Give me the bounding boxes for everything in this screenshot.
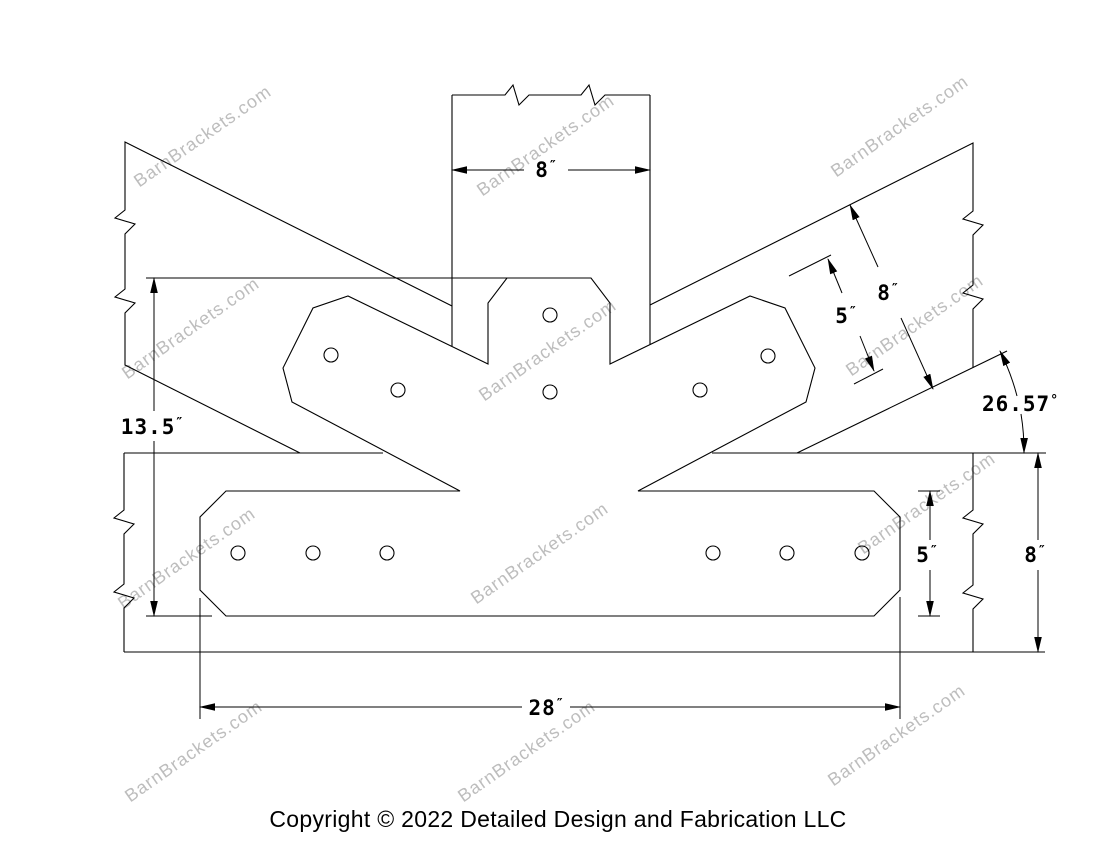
dimension-label: 8″ — [535, 158, 556, 182]
watermark-text: BarnBrackets.com — [130, 81, 275, 191]
bolt-hole — [543, 385, 557, 399]
right-rafter-outline — [650, 143, 983, 368]
bolt-hole — [543, 308, 557, 322]
watermark-text: BarnBrackets.com — [824, 680, 969, 790]
post-top-edge — [452, 85, 650, 105]
bolt-hole — [780, 546, 794, 560]
dimension-label: 13.5″ — [121, 415, 183, 439]
watermark-text: BarnBrackets.com — [475, 295, 620, 405]
dimension-rafter-angle: 26.57° — [982, 351, 1058, 453]
angle-arc — [1000, 351, 1017, 396]
dimension-label: 8″ — [1024, 543, 1045, 567]
watermark-text: BarnBrackets.com — [467, 498, 612, 608]
bolt-hole — [706, 546, 720, 560]
beam-left-edge — [114, 453, 134, 652]
left-rafter — [115, 142, 452, 453]
watermark-text: BarnBrackets.com — [114, 503, 259, 613]
dimension-label: 5″ — [916, 543, 937, 567]
watermark-text: BarnBrackets.com — [473, 90, 618, 200]
bolt-hole — [306, 546, 320, 560]
dimension-line — [828, 259, 842, 293]
bolt-hole — [380, 546, 394, 560]
bolt-hole — [391, 383, 405, 397]
watermark-text: BarnBrackets.com — [121, 696, 266, 806]
left-rafter-outline — [115, 142, 452, 453]
angle-arc — [1021, 414, 1024, 453]
dimension-line — [850, 205, 878, 267]
fan-bracket-outline — [200, 278, 900, 616]
bottom-beam — [114, 453, 1046, 652]
center-post — [452, 85, 650, 346]
dimension-beam-height: 8″ — [1024, 453, 1045, 652]
watermark-text: BarnBrackets.com — [854, 448, 999, 558]
watermark-text: BarnBrackets.com — [118, 273, 263, 383]
watermark-text: BarnBrackets.com — [842, 270, 987, 380]
bolt-hole — [324, 348, 338, 362]
bolt-hole — [761, 349, 775, 363]
watermark-layer: BarnBrackets.com BarnBrackets.com BarnBr… — [114, 71, 999, 806]
watermark-text: BarnBrackets.com — [827, 71, 972, 181]
fan-bracket — [200, 278, 900, 616]
extension-line — [789, 255, 831, 276]
right-rafter-bottom-edge — [797, 351, 1007, 453]
bolt-hole — [693, 383, 707, 397]
dimension-label: 26.57° — [982, 392, 1058, 416]
copyright-text: Copyright © 2022 Detailed Design and Fab… — [269, 806, 846, 832]
bolt-hole — [231, 546, 245, 560]
dimension-label: 8″ — [877, 281, 898, 305]
watermark-text: BarnBrackets.com — [454, 696, 599, 806]
technical-drawing-canvas: BarnBrackets.com BarnBrackets.com BarnBr… — [0, 0, 1100, 850]
dimension-label: 5″ — [835, 304, 856, 328]
